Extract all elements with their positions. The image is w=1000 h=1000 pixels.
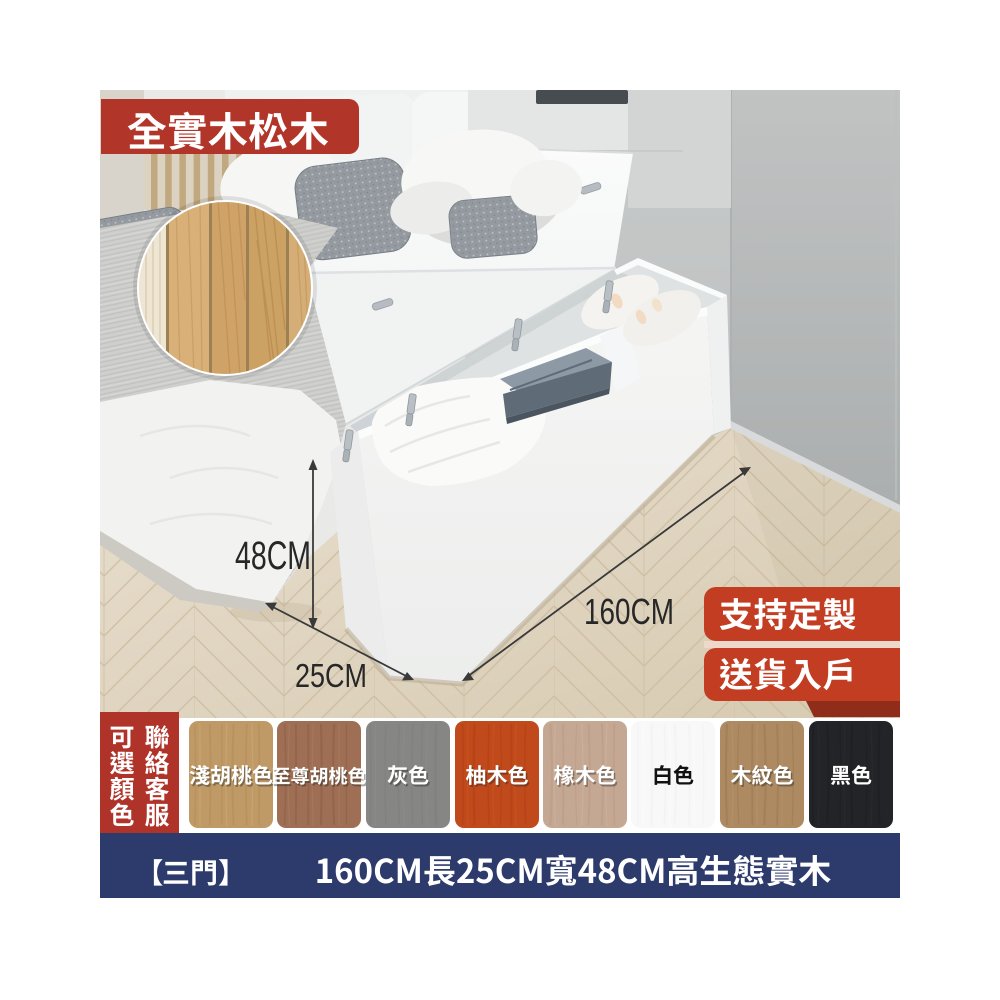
svg-text:48CM: 48CM bbox=[235, 534, 311, 578]
svg-text:25CM: 25CM bbox=[295, 657, 367, 694]
svg-text:160CM: 160CM bbox=[584, 591, 674, 632]
